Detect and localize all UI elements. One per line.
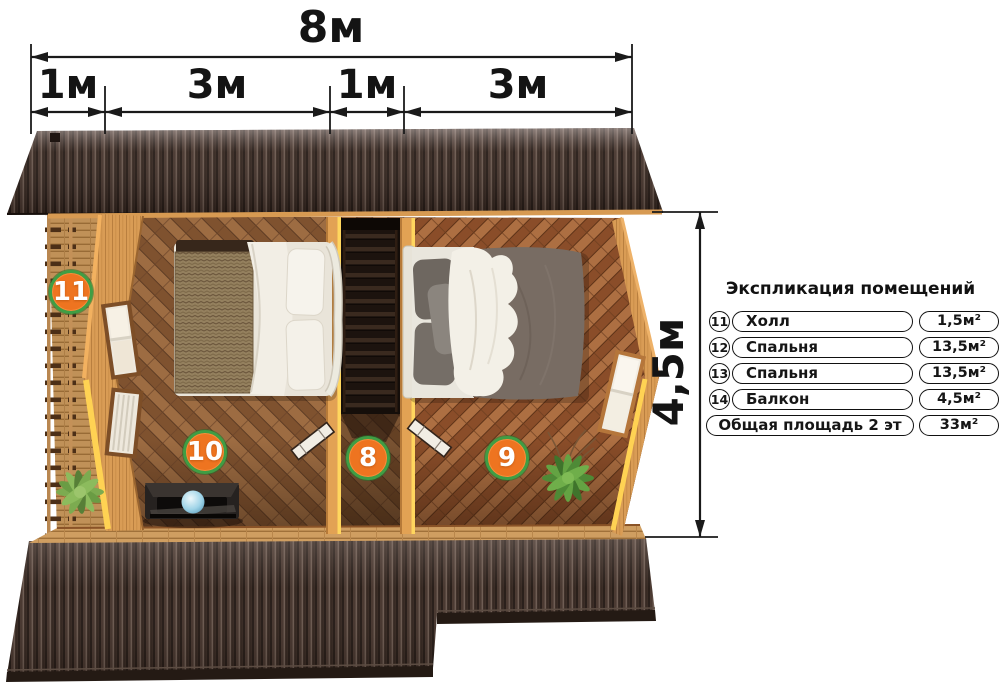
roof-top [7, 128, 663, 214]
staircase [341, 218, 400, 442]
chimney [50, 133, 60, 142]
roof-bottom [6, 538, 656, 682]
legend-room-name: Балкон [732, 389, 913, 410]
dimension-segment-4: 3м [468, 62, 568, 108]
pillow [286, 319, 325, 390]
legend-row: 11 Холл 1,5м² [701, 311, 1000, 332]
legend-room-area: 4,5м² [919, 389, 999, 410]
legend-room-area: 1,5м² [919, 311, 999, 332]
legend-row-number: 13 [709, 363, 730, 384]
legend-room-name: Спальня [732, 337, 913, 358]
legend-room-area: 13,5м² [919, 337, 999, 358]
room-marker-11: 11 [49, 270, 93, 314]
floor-plan-page: 8м 1м 3м 1м 3м 4,5м 11 10 8 9 Экспликаци… [0, 0, 1000, 683]
legend-row: 14 Балкон 4,5м² [701, 389, 1000, 410]
room-marker-10: 10 [183, 430, 227, 474]
dimension-segment-2: 3м [167, 62, 267, 108]
legend-row-number: 12 [709, 337, 730, 358]
room-marker-9: 9 [485, 436, 529, 480]
legend-row-number: 14 [709, 389, 730, 410]
dimension-segment-1: 1м [18, 62, 118, 108]
legend-row-number: 11 [709, 311, 730, 332]
room-marker-8: 8 [346, 436, 390, 480]
bed-left-blanket [175, 252, 253, 393]
pillow [286, 248, 325, 315]
bed-right [403, 246, 589, 403]
dimension-height: 4,5м [644, 287, 694, 457]
bed-left [174, 240, 338, 401]
legend-room-area: 13,5м² [919, 363, 999, 384]
legend-total-area: 33м² [919, 415, 999, 436]
legend-row: 13 Спальня 13,5м² [701, 363, 1000, 384]
lamp-orb [182, 491, 205, 514]
room-legend: Экспликация помещений 11 Холл 1,5м² 12 С… [701, 279, 1000, 441]
tv-stand [143, 483, 243, 528]
legend-total-label: Общая площадь 2 эт [706, 415, 914, 436]
legend-title: Экспликация помещений [701, 279, 1000, 299]
legend-total-row: Общая площадь 2 эт 33м² [701, 415, 1000, 436]
legend-row: 12 Спальня 13,5м² [701, 337, 1000, 358]
dimension-segment-3: 1м [317, 62, 417, 108]
legend-room-name: Спальня [732, 363, 913, 384]
dimension-width-total: 8м [251, 2, 411, 53]
legend-room-name: Холл [732, 311, 913, 332]
